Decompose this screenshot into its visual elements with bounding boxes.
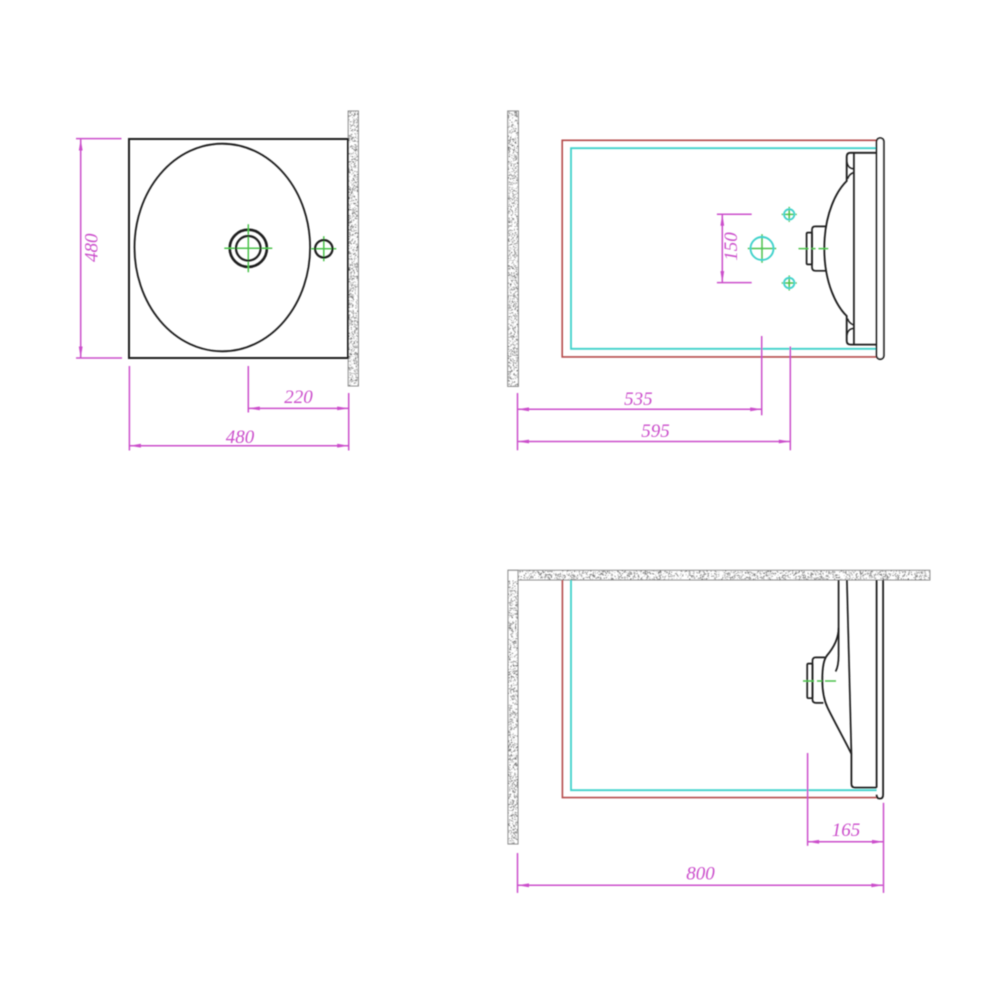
svg-text:480: 480 — [226, 427, 255, 448]
svg-text:220: 220 — [284, 387, 313, 408]
svg-text:800: 800 — [686, 864, 715, 885]
svg-text:480: 480 — [82, 233, 103, 262]
svg-text:535: 535 — [624, 389, 653, 410]
svg-text:595: 595 — [641, 421, 670, 442]
svg-text:165: 165 — [832, 820, 861, 841]
svg-text:150: 150 — [721, 232, 742, 261]
